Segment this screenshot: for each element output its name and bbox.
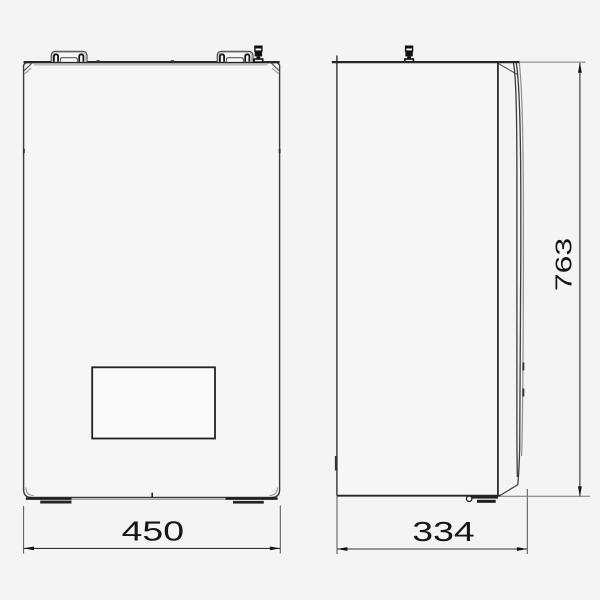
svg-text:763: 763 <box>551 238 577 291</box>
svg-text:450: 450 <box>122 515 184 546</box>
svg-text:334: 334 <box>412 516 474 547</box>
